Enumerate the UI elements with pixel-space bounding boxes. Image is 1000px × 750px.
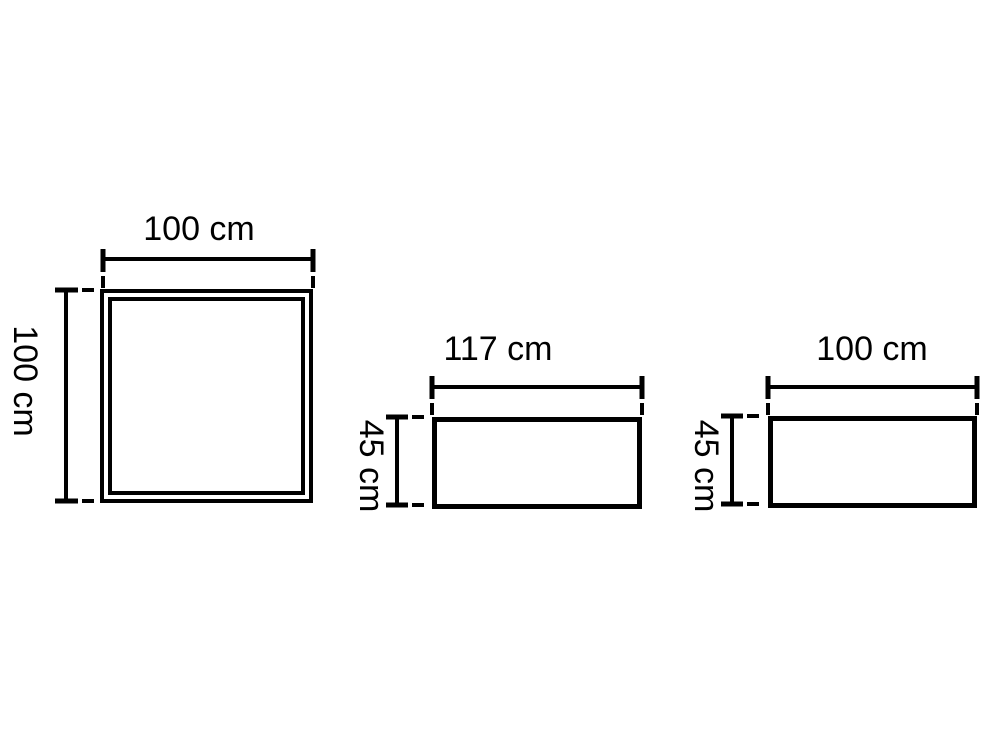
- square-panel-group: [55, 249, 313, 501]
- square-width-label: 100 cm: [119, 207, 279, 251]
- rectangle-117-height-label: 45 cm: [349, 386, 393, 546]
- square-inner-outline: [110, 299, 303, 493]
- rectangle-100-width-label: 100 cm: [792, 327, 952, 371]
- rectangle-outline: [435, 420, 640, 507]
- rectangle-outline: [771, 419, 975, 506]
- square-outer-outline: [102, 291, 311, 501]
- square-height-label: 100 cm: [3, 301, 47, 461]
- rectangle-100-height-label: 45 cm: [684, 386, 728, 546]
- rectangle-100-group: [721, 376, 977, 506]
- diagram-canvas: 100 cm 100 cm 117 cm 45 cm 100 cm 45 cm: [0, 0, 1000, 750]
- rectangle-117-group: [386, 376, 642, 507]
- dimension-drawing: [0, 0, 1000, 750]
- rectangle-117-width-label: 117 cm: [418, 327, 578, 371]
